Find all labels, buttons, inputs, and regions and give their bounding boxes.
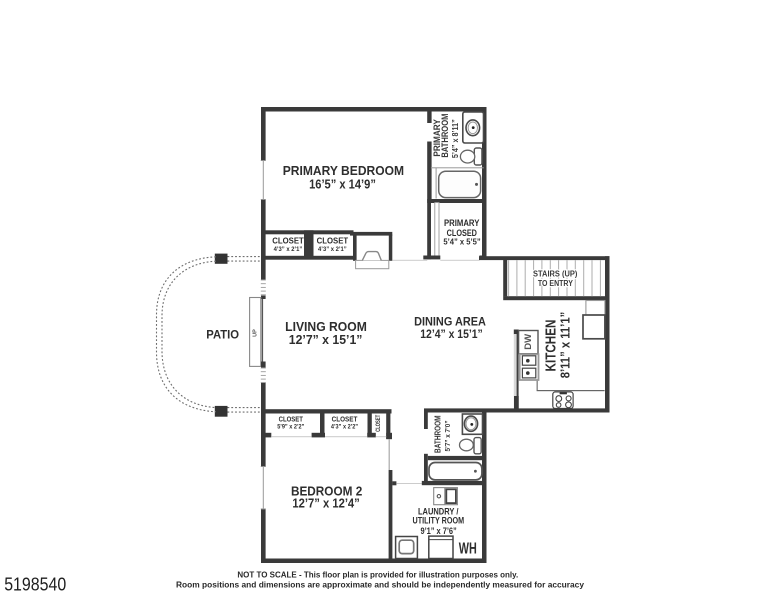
svg-text:NOT TO SCALE - This floor plan: NOT TO SCALE - This floor plan is provid… bbox=[237, 571, 518, 580]
svg-text:8’11” x 11’1”: 8’11” x 11’1” bbox=[559, 312, 573, 379]
svg-text:LIVING ROOM: LIVING ROOM bbox=[285, 319, 367, 334]
svg-text:5’4” x 8’11”: 5’4” x 8’11” bbox=[450, 119, 460, 158]
svg-text:PATIO: PATIO bbox=[206, 328, 239, 341]
svg-text:CLOSET: CLOSET bbox=[272, 236, 304, 245]
svg-text:DW: DW bbox=[523, 333, 533, 350]
svg-text:9’1” x 7’6”: 9’1” x 7’6” bbox=[420, 525, 456, 536]
svg-text:CLOSET: CLOSET bbox=[375, 415, 382, 432]
svg-text:BATHROOM: BATHROOM bbox=[434, 415, 443, 453]
svg-text:4’3” x 2’2”: 4’3” x 2’2” bbox=[331, 423, 358, 430]
svg-text:5’9” x 2’2”: 5’9” x 2’2” bbox=[277, 423, 304, 430]
svg-text:UP: UP bbox=[253, 329, 259, 337]
svg-text:12’4” x 15’1”: 12’4” x 15’1” bbox=[420, 328, 483, 341]
svg-text:TO ENTRY: TO ENTRY bbox=[538, 278, 573, 288]
svg-text:CLOSET: CLOSET bbox=[317, 236, 349, 245]
svg-text:12’7” x 12’4”: 12’7” x 12’4” bbox=[292, 497, 359, 511]
svg-text:5’4” x 5’5”: 5’4” x 5’5” bbox=[443, 237, 480, 247]
svg-text:CLOSET: CLOSET bbox=[279, 414, 304, 423]
svg-text:PRIMARY BEDROOM: PRIMARY BEDROOM bbox=[283, 163, 404, 178]
svg-text:Room positions and dimensions: Room positions and dimensions are approx… bbox=[176, 580, 584, 589]
svg-text:16’5” x 14’9”: 16’5” x 14’9” bbox=[309, 178, 376, 192]
svg-text:KITCHEN: KITCHEN bbox=[544, 320, 560, 372]
svg-text:5’7” x 7’0”: 5’7” x 7’0” bbox=[443, 420, 452, 451]
svg-text:DINING AREA: DINING AREA bbox=[414, 316, 486, 329]
svg-text:12’7” x 15’1”: 12’7” x 15’1” bbox=[289, 333, 363, 347]
svg-text:WH: WH bbox=[459, 540, 477, 557]
svg-text:4’3” x 2’1”: 4’3” x 2’1” bbox=[318, 246, 347, 253]
svg-text:CLOSET: CLOSET bbox=[332, 414, 358, 423]
svg-text:BATHROOM: BATHROOM bbox=[440, 113, 450, 157]
svg-text:STAIRS (UP): STAIRS (UP) bbox=[533, 269, 577, 279]
svg-text:5198540: 5198540 bbox=[4, 574, 66, 594]
svg-text:4’3” x 2’1”: 4’3” x 2’1” bbox=[274, 246, 303, 253]
